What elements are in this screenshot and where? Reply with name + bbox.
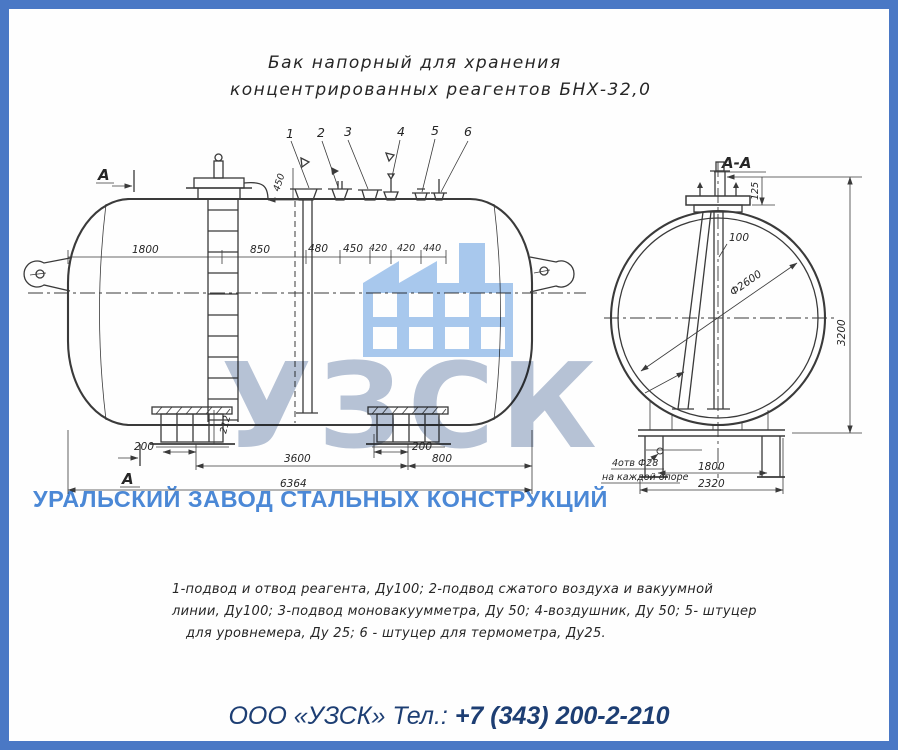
holes-note-line-2: на каждой опоре [602, 472, 689, 483]
dim-100: 100 [729, 232, 749, 244]
footer-contact: ООО «УЗСК» Тел.: +7 (343) 200-2-210 [9, 702, 889, 731]
dim-125: 125 [750, 182, 761, 200]
manhole [186, 154, 268, 200]
support-right [366, 407, 451, 447]
callout-1: 1 [286, 126, 294, 141]
dim-440: 440 [423, 243, 441, 254]
lifting-eyes [24, 257, 574, 292]
internal-pipe [296, 200, 318, 413]
section-view-title: А-А [721, 154, 751, 172]
note-line-1: 1-подвод и отвод реагента, Ду100; 2-подв… [172, 582, 713, 597]
dim-480: 480 [308, 243, 328, 255]
callout-6: 6 [464, 124, 472, 139]
dim-212: 212 [218, 414, 233, 434]
drawing-page: Бак напорный для хранения концентрирован… [0, 0, 898, 750]
section-letter-top: А [97, 166, 110, 184]
dim-diameter: Ф2600 [641, 263, 797, 371]
note-line-2: линии, Ду100; 3-подвод моновакуумметра, … [171, 604, 757, 619]
tank-outline [68, 199, 532, 425]
callout-flag-4 [386, 153, 394, 161]
dim-800: 800 [432, 453, 452, 465]
dim-f2600: Ф2600 [728, 268, 764, 299]
callout-flag-2 [331, 167, 339, 175]
dim-420-a: 420 [369, 243, 387, 254]
callout-3: 3 [344, 124, 352, 139]
dim-420-b: 420 [397, 243, 415, 254]
left-head-seam [100, 204, 107, 420]
note-line-3: для уровнемера, Ду 25; 6 - штуцер для те… [185, 626, 606, 641]
callout-5: 5 [431, 123, 439, 138]
footer-phone-label: Тел.: [392, 702, 448, 730]
technical-drawing: Бак напорный для хранения концентрирован… [9, 9, 889, 741]
dim-3200: 3200 [836, 319, 848, 346]
section-letter-bottom: А [121, 470, 134, 488]
dim-850: 850 [250, 244, 270, 256]
section-pipes [645, 212, 730, 409]
holes-note: 4отв Ф28 на каждой опоре [601, 454, 689, 483]
dim-200-center: 200 [412, 441, 432, 453]
callout-4: 4 [397, 124, 405, 139]
section-marker-top: А [96, 166, 134, 192]
legend-notes: 1-подвод и отвод реагента, Ду100; 2-подв… [171, 582, 757, 641]
callouts: 1 2 3 4 5 6 [286, 123, 472, 192]
dim-200-left: 200 [134, 441, 154, 453]
dim-1800-stand: 1800 [698, 461, 725, 473]
section-view: А-А 100 [601, 154, 862, 494]
dim-height: 3200 [792, 177, 862, 433]
dim-riser-value: 450 [271, 172, 287, 193]
dim-1800: 1800 [132, 244, 159, 256]
title-line-1: Бак напорный для хранения [268, 53, 562, 73]
footer-phone-number: +7 (343) 200-2-210 [455, 702, 670, 730]
top-dimension-chain: 1800 850 480 450 420 420 440 [68, 243, 446, 264]
dim-2320: 2320 [698, 478, 725, 490]
drawing-title: Бак напорный для хранения концентрирован… [230, 53, 651, 100]
bottom-dimensions: 200 200 3600 800 6364 [68, 430, 532, 494]
main-view: 1 2 3 4 5 6 450 1800 850 480 450 420 [24, 123, 586, 494]
dim-3600: 3600 [284, 453, 311, 465]
dim-450: 450 [343, 243, 363, 255]
nozzle-4 [384, 174, 398, 200]
footer-company: ООО «УЗСК» [228, 702, 385, 730]
dim-neck-125: 125 [727, 177, 862, 205]
right-head-seam [494, 204, 501, 420]
callout-flag-1 [301, 158, 309, 167]
nozzle-2 [328, 181, 352, 200]
dim-6364: 6364 [280, 478, 307, 490]
callout-2: 2 [317, 125, 325, 140]
nozzle-6 [431, 179, 447, 200]
title-line-2: концентрированных реагентов БНХ-32,0 [230, 80, 651, 100]
ladder [208, 200, 238, 422]
